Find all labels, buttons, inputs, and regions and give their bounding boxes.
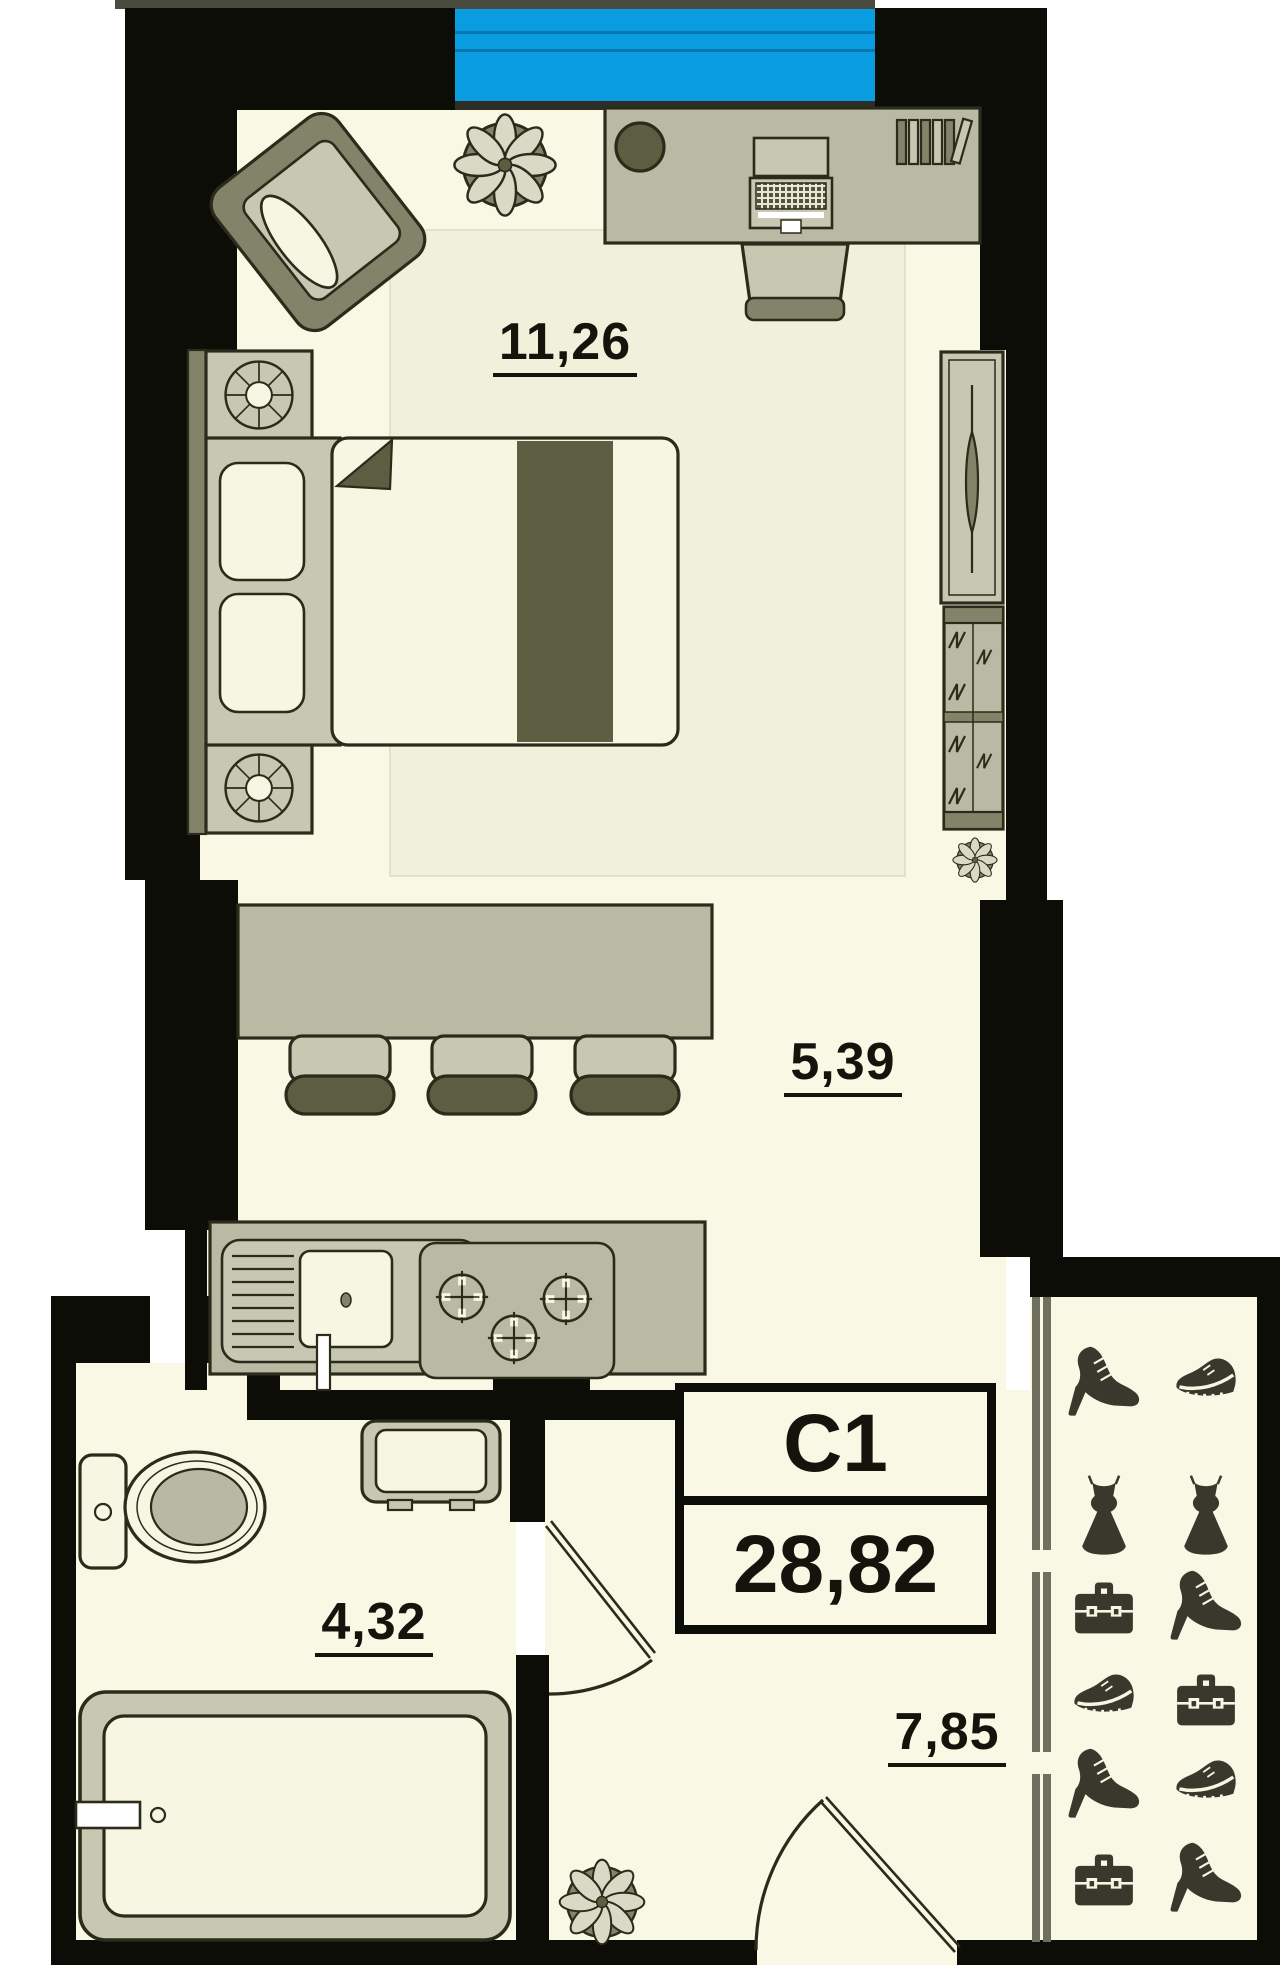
balcony-window <box>447 9 875 102</box>
wall-segment <box>1052 1940 1280 1965</box>
wall-segment <box>51 1296 76 1965</box>
wall-segment <box>247 1390 706 1420</box>
unit-total-area: 28,82 <box>684 1505 987 1625</box>
bathtub <box>76 1692 510 1940</box>
wall-segment <box>145 880 238 1230</box>
chest-of-drawers <box>944 607 1003 829</box>
living-room-area-label: 11,26 <box>455 316 675 377</box>
gas-hob <box>420 1243 614 1378</box>
laptop-icon <box>750 138 832 233</box>
table-lamp-icon <box>226 362 293 429</box>
faucet-icon <box>317 1335 330 1390</box>
balcony-railing-line <box>115 0 875 9</box>
unit-info-box: C1 28,82 <box>675 1383 996 1634</box>
wall-segment <box>957 1940 1063 1965</box>
table-lamp-icon <box>226 755 293 822</box>
wall-segment <box>516 1655 549 1965</box>
hallway-area-label: 7,85 <box>837 1706 1057 1767</box>
bar-table <box>238 905 712 1038</box>
desk-plant-icon <box>616 123 664 171</box>
unit-code: C1 <box>684 1392 987 1505</box>
entrance-opening <box>757 1940 957 1965</box>
desk-chair <box>742 244 848 320</box>
bar-stools <box>286 1036 679 1114</box>
wall-segment <box>1006 110 1047 900</box>
tub-faucet-icon <box>76 1802 140 1828</box>
kitchen-area-label: 5,39 <box>733 1036 953 1097</box>
floor-plan-drawing <box>0 0 1280 1965</box>
potted-plant-icon <box>953 838 997 882</box>
wall-segment <box>51 1940 757 1965</box>
wall-segment <box>1257 1257 1280 1965</box>
potted-plant-icon <box>454 114 555 215</box>
bathroom-area-label: 4,32 <box>264 1596 484 1657</box>
desk <box>605 108 980 243</box>
floor-plan: 11,26 5,39 4,32 7,85 C1 28,82 <box>0 0 1280 1965</box>
wardrobe-with-mirror <box>941 352 1003 603</box>
wash-basin <box>362 1421 500 1510</box>
wall-segment <box>1030 1257 1280 1297</box>
kitchen-counter <box>210 1222 705 1390</box>
pillow <box>220 463 304 580</box>
bed-headboard <box>188 350 206 834</box>
books-icon <box>897 119 972 164</box>
bed-blanket <box>517 441 613 742</box>
wall-segment <box>510 1418 545 1522</box>
toilet <box>80 1452 265 1568</box>
potted-plant-icon <box>560 1860 645 1945</box>
wall-segment <box>980 900 1063 1257</box>
pillow <box>220 594 304 712</box>
